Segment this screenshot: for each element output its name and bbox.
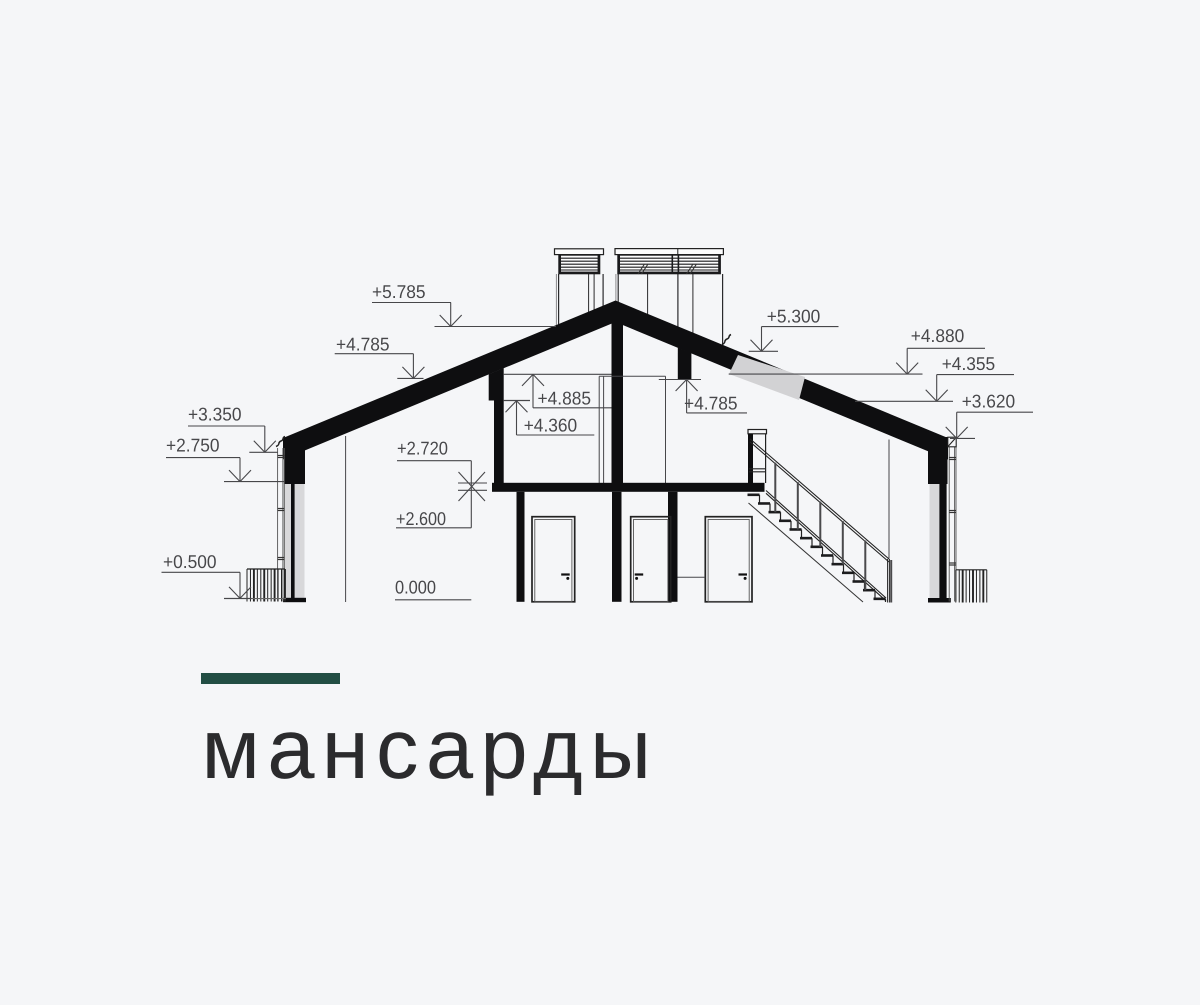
svg-text:+2.720: +2.720 [397,438,448,459]
svg-text:+0.500: +0.500 [163,551,217,572]
svg-text:+2.600: +2.600 [396,508,446,529]
svg-text:+5.300: +5.300 [767,306,821,327]
svg-text:+4.885: +4.885 [538,388,592,409]
svg-text:+3.350: +3.350 [188,404,242,425]
svg-text:+4.360: +4.360 [524,415,578,436]
svg-text:+4.785: +4.785 [684,393,738,414]
svg-text:+4.785: +4.785 [336,334,390,355]
svg-text:+4.880: +4.880 [911,325,965,346]
svg-text:+4.355: +4.355 [942,353,996,374]
svg-text:+3.620: +3.620 [962,391,1016,412]
svg-text:мансарды: мансарды [202,702,659,797]
svg-text:+5.785: +5.785 [372,281,426,302]
svg-text:+2.750: +2.750 [166,435,220,456]
svg-text:0.000: 0.000 [395,577,436,598]
